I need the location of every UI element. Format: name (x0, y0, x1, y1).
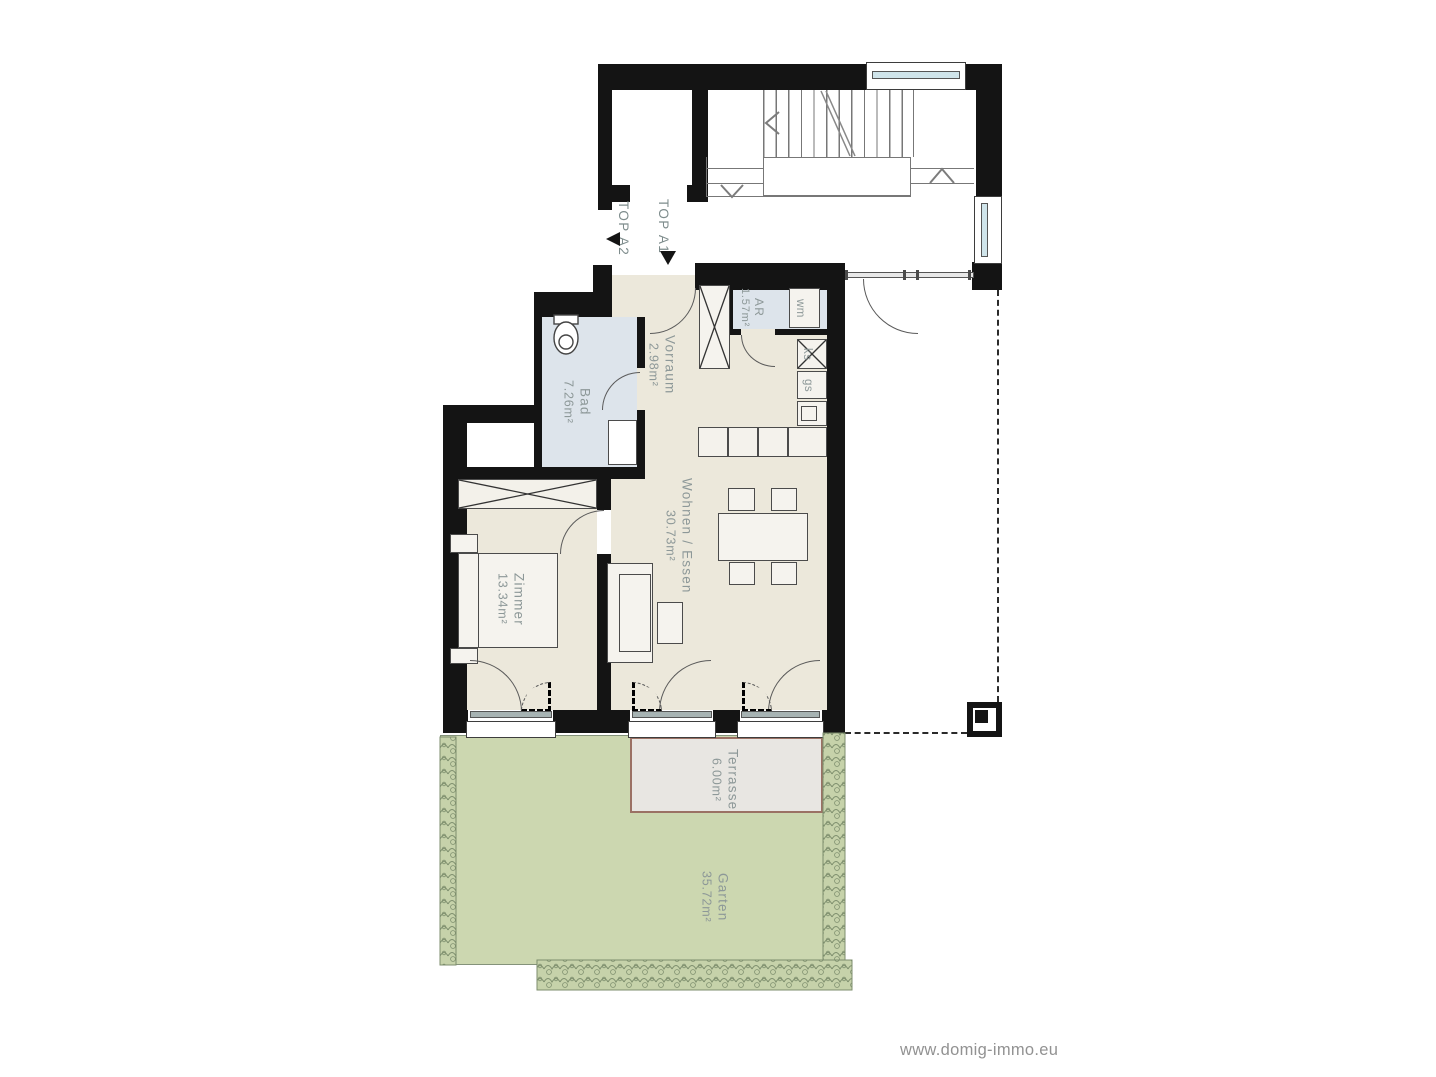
stair-treads (763, 90, 914, 157)
door-glazing (741, 711, 820, 718)
entry-closet (699, 285, 730, 369)
dining-chair (728, 488, 755, 511)
stair-line (706, 196, 911, 197)
door-sill (737, 721, 824, 738)
room-label-ar: AR1.57m² (737, 281, 766, 335)
door-sill (466, 721, 556, 738)
room-label-wohnen: Wohnen / Essen30.73m² (662, 476, 695, 596)
stair-line (706, 168, 763, 169)
appliance-label-wm: wm (794, 291, 806, 325)
stair-line (706, 157, 707, 197)
wall-segment (534, 292, 612, 317)
partition-tick (968, 270, 971, 280)
door-glazing (632, 711, 712, 718)
boundary-pillar-core (975, 710, 988, 723)
kitchen-counter-cell (698, 427, 728, 457)
wall-segment (553, 710, 630, 733)
room-label-bad: Bad7.26m² (560, 366, 593, 438)
dining-chair (771, 562, 797, 585)
room-label-vorraum: Vorraum2.98m² (645, 325, 678, 405)
stair-landing (763, 157, 911, 196)
wall-segment (534, 292, 542, 475)
wardrobe (458, 479, 597, 509)
door-sill (628, 721, 716, 738)
dining-chair (729, 562, 755, 585)
floor-plan: TOP A2 TOP A1 Vorraum2.98m² AR1.57m² Bad… (0, 0, 1436, 1077)
wall-segment (637, 410, 645, 467)
boundary-dashed-line (997, 290, 999, 702)
bath-vanity (608, 420, 637, 465)
partition-tick (845, 270, 848, 280)
side-table (657, 602, 683, 644)
window-glass (981, 203, 988, 257)
dining-table (718, 513, 808, 561)
wall-segment (775, 329, 827, 335)
wall-segment (443, 710, 468, 733)
wall-segment (827, 263, 845, 733)
room-label-terrasse: Terrasse6.00m² (708, 741, 741, 819)
unit-label-top-a2: TOP A2 (616, 197, 631, 261)
glazed-partition (845, 272, 974, 278)
stair-line (706, 183, 763, 184)
room-label-zimmer: Zimmer13.34m² (494, 554, 527, 644)
dining-chair (771, 488, 797, 511)
wall-segment (637, 317, 645, 368)
watermark-url: www.domig-immo.eu (900, 1041, 1058, 1060)
stair-line (913, 90, 914, 157)
wall-segment (822, 710, 845, 733)
appliance-label-gs: gs (802, 373, 814, 398)
sofa-seat (619, 574, 651, 652)
wall-segment (597, 479, 611, 510)
room-label-garten: Garten35.72m² (698, 851, 731, 943)
wall-segment (976, 64, 1002, 198)
top-a2-arrow-icon (606, 232, 620, 246)
top-a1-arrow-icon (660, 251, 676, 265)
boundary-dashed-line (845, 732, 967, 734)
door-arc (863, 279, 918, 334)
kitchen-counter-cell (758, 427, 788, 457)
bed-pillow-line (478, 554, 479, 647)
stair-line (911, 183, 974, 184)
nightstand (450, 534, 478, 553)
wall-segment (713, 710, 740, 733)
unit-label-top-a1: TOP A1 (656, 195, 671, 259)
wall-segment (611, 467, 645, 479)
stair-line (911, 168, 974, 169)
kitchen-sink-basin (801, 406, 817, 421)
door-glazing (470, 711, 552, 718)
wall-segment (443, 467, 611, 479)
wall-segment (972, 262, 1002, 290)
kitchen-counter-cell (728, 427, 758, 457)
window-glass (872, 71, 960, 79)
window-frame (974, 196, 1002, 264)
kitchen-counter-cell (788, 427, 827, 457)
appliance-label-ks: ks (801, 341, 813, 368)
